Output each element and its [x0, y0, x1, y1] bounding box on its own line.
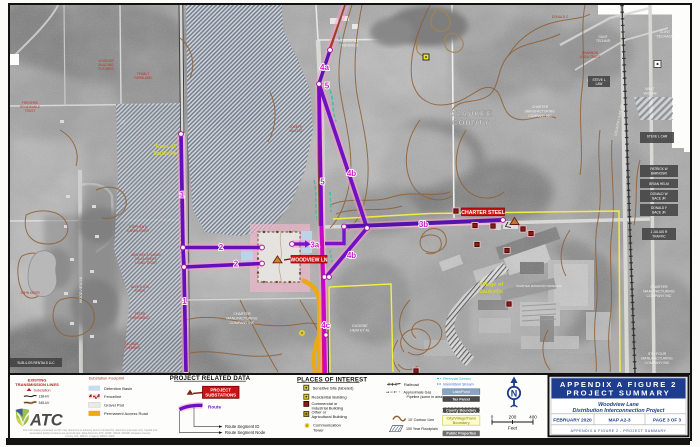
svg-text:200: 200: [509, 415, 517, 420]
svg-text:OZAUKEE: OZAUKEE: [449, 109, 493, 118]
svg-text:0: 0: [491, 415, 494, 420]
svg-text:MANUFACTURING: MANUFACTURING: [525, 110, 555, 114]
svg-text:CHARTER MANUFACTURING INC: CHARTER MANUFACTURING INC: [516, 284, 562, 288]
svg-text:4c: 4c: [321, 321, 330, 330]
svg-text:Permanent Access Road: Permanent Access Road: [104, 411, 148, 416]
svg-text:Residential Building: Residential Building: [312, 394, 347, 399]
svg-text:Tax Parcel: Tax Parcel: [452, 397, 470, 401]
svg-text:Perennial Stream: Perennial Stream: [443, 377, 471, 381]
svg-text:Intermittent Stream: Intermittent Stream: [443, 383, 474, 387]
svg-text:3a: 3a: [310, 241, 319, 250]
svg-text:J JULIUS R: J JULIUS R: [651, 230, 668, 234]
svg-text:PROJECT SUMMARY: PROJECT SUMMARY: [567, 389, 671, 398]
svg-text:TECHACK: TECHACK: [656, 35, 674, 39]
svg-text:SUB-4-OS RENTALS LLC: SUB-4-OS RENTALS LLC: [17, 361, 55, 365]
svg-text:5: 5: [320, 178, 325, 187]
svg-text:FUTURES: FUTURES: [98, 67, 113, 71]
svg-text:Route: Route: [208, 405, 221, 410]
svg-text:1: 1: [180, 191, 185, 200]
svg-text:APPENDIX A FIGURE 2 - P: APPENDIX A FIGURE 2 - PROJECT SUMMARY: [571, 429, 667, 433]
svg-text:LAW: LAW: [596, 82, 603, 86]
svg-text:Substation Footprint: Substation Footprint: [89, 376, 126, 381]
svg-text:MANUFACTURING: MANUFACTURING: [226, 317, 258, 321]
svg-text:MANUFACTURING: MANUFACTURING: [643, 290, 675, 294]
svg-text:HEIM ET AL: HEIM ET AL: [350, 329, 370, 333]
svg-text:MANUFACTURING: MANUFACTURING: [641, 357, 673, 361]
svg-text:JOHN KRIER: JOHN KRIER: [20, 291, 40, 295]
svg-text:CHARTER STEEL: CHARTER STEEL: [461, 210, 505, 216]
svg-text:138-kV: 138-kV: [39, 395, 50, 399]
svg-text:ATC: ATC: [29, 412, 64, 430]
svg-text:BRIAN HELM: BRIAN HELM: [649, 182, 669, 186]
svg-text:DONALD F: DONALD F: [651, 206, 667, 210]
svg-text:KAREN KRIER: KAREN KRIER: [127, 229, 149, 233]
svg-text:PAGE 3 OF 3: PAGE 3 OF 3: [653, 417, 681, 422]
svg-text:CHARTER: CHARTER: [532, 105, 549, 109]
svg-text:VALLEST: VALLEST: [289, 129, 303, 133]
svg-text:Fenceline: Fenceline: [104, 394, 122, 399]
svg-text:1: 1: [182, 297, 187, 306]
svg-text:FARMLAND: FARMLAND: [134, 76, 152, 80]
svg-text:COMPANY INC: COMPANY INC: [644, 361, 669, 365]
svg-text:County Boundary: County Boundary: [446, 409, 476, 413]
svg-text:2: 2: [234, 260, 239, 269]
svg-text:STEVE L CAR: STEVE L CAR: [647, 135, 668, 139]
svg-text:400: 400: [529, 415, 537, 420]
svg-text:WOODVIEW LN: WOODVIEW LN: [291, 257, 328, 263]
svg-text:CHARTER: CHARTER: [650, 285, 668, 289]
svg-text:BACE JR: BACE JR: [652, 211, 666, 215]
svg-text:TECHAIR: TECHAIR: [596, 39, 611, 43]
svg-text:LIVING TRUST: LIVING TRUST: [135, 261, 157, 265]
svg-text:345-kV: 345-kV: [39, 401, 50, 405]
svg-text:FEBRUARY 2020: FEBRUARY 2020: [553, 417, 592, 423]
svg-text:KENNELS: KENNELS: [342, 44, 359, 48]
svg-text:Pipeline (some in area): Pipeline (some in area): [407, 395, 444, 399]
svg-text:SUBSTATIONS: SUBSTATIONS: [205, 393, 236, 398]
svg-text:Saukville: Saukville: [479, 289, 503, 295]
svg-text:Boundary: Boundary: [453, 421, 470, 425]
svg-text:FARENWALD: FARENWALD: [130, 316, 150, 320]
svg-text:Sensitive Site (labeled): Sensitive Site (labeled): [313, 386, 355, 391]
svg-text:LINDA TRUST: LINDA TRUST: [580, 55, 601, 59]
svg-text:WALT: WALT: [645, 87, 655, 91]
svg-text:Lake/Pond: Lake/Pond: [453, 390, 470, 394]
svg-text:SANDHILL: SANDHILL: [341, 39, 359, 43]
svg-text:3b: 3b: [419, 220, 428, 229]
svg-text:TRAFFIC: TRAFFIC: [652, 235, 666, 239]
svg-text:Gravel Pad: Gravel Pad: [104, 403, 124, 408]
svg-text:100 Year Floodplain: 100 Year Floodplain: [406, 427, 438, 431]
svg-text:Public Properties: Public Properties: [446, 432, 476, 436]
svg-text:CLINT: CLINT: [660, 30, 671, 34]
svg-text:2: 2: [219, 243, 224, 252]
svg-text:4a: 4a: [320, 63, 329, 72]
svg-text:COMPANY INC: COMPANY INC: [229, 321, 254, 325]
svg-text:WOODVIEW LN: WOODVIEW LN: [79, 276, 83, 303]
svg-text:TRANSMISSION LINES: TRANSMISSION LINES: [15, 382, 59, 387]
svg-text:Substation: Substation: [34, 388, 51, 392]
svg-text:5: 5: [325, 82, 330, 91]
svg-text:Town of: Town of: [155, 144, 176, 150]
svg-text:COUNTY: COUNTY: [452, 118, 490, 127]
svg-text:4b: 4b: [347, 251, 356, 260]
svg-text:WILTAN: WILTAN: [643, 92, 656, 96]
svg-text:COMPANY INC: COMPANY INC: [528, 114, 552, 118]
svg-text:PATRICK W: PATRICK W: [650, 167, 667, 171]
svg-text:Detention Basin: Detention Basin: [104, 386, 132, 391]
svg-text:DONALD C: DONALD C: [552, 15, 569, 19]
svg-text:TRUST: TRUST: [25, 109, 36, 113]
svg-text:N: N: [511, 388, 518, 398]
svg-text:Railroad: Railroad: [404, 382, 419, 387]
svg-text:4b: 4b: [347, 169, 356, 178]
svg-text:BACE JR: BACE JR: [652, 197, 666, 201]
svg-text:EUGENE: EUGENE: [352, 324, 368, 328]
svg-text:Saukville: Saukville: [153, 151, 177, 157]
svg-text:COMPANY INC: COMPANY INC: [646, 294, 671, 298]
svg-text:APPENDIX A FIGURE 2: APPENDIX A FIGURE 2: [560, 380, 677, 389]
svg-text:Agricultural Building: Agricultural Building: [312, 414, 347, 419]
svg-text:KOERNER: KOERNER: [124, 346, 140, 350]
svg-text:DONALD W: DONALD W: [650, 192, 667, 196]
svg-text:Route Segment Node: Route Segment Node: [225, 430, 266, 435]
svg-text:Feet: Feet: [508, 426, 518, 431]
svg-text:Tower: Tower: [313, 427, 324, 432]
svg-text:Distribution Interconnection P: Distribution Interconnection Project: [573, 408, 665, 414]
svg-text:Route Segment ID: Route Segment ID: [225, 424, 259, 429]
svg-text:KRIER: KRIER: [135, 289, 145, 293]
svg-text:STH FOUR: STH FOUR: [648, 352, 667, 356]
svg-text:Village of: Village of: [479, 282, 504, 288]
svg-text:BARNOSKI: BARNOSKI: [651, 172, 668, 176]
svg-text:CHARTER: CHARTER: [233, 312, 251, 316]
svg-text:MAP A2-3: MAP A2-3: [608, 417, 630, 423]
svg-text:10' Contour Line: 10' Contour Line: [408, 418, 434, 422]
